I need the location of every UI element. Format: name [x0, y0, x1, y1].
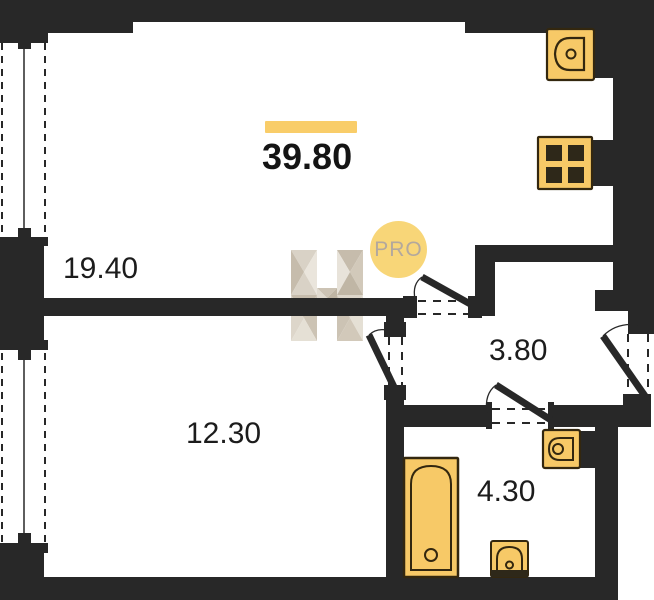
door-leaf — [496, 385, 551, 420]
toilet-icon — [491, 541, 528, 577]
room-area-label-living-kitchen: 19.40 — [63, 254, 138, 284]
wall-segment — [595, 290, 654, 311]
window-sill — [0, 340, 48, 350]
kitchen-sink-icon — [547, 29, 594, 80]
h-logo-icon — [291, 250, 363, 341]
door-leaf — [422, 277, 472, 305]
wall-segment — [613, 0, 654, 290]
room-area-label-bedroom: 12.30 — [186, 419, 261, 449]
bathtub-icon — [404, 458, 458, 577]
wall-segment — [0, 0, 133, 33]
door-jamb — [628, 311, 654, 334]
wall-segment — [0, 577, 618, 600]
accent-bar — [265, 121, 357, 133]
wall-segment — [404, 405, 492, 427]
door-jamb — [384, 385, 406, 400]
total-area-label: 39.80 — [262, 139, 352, 175]
wall-segment — [0, 553, 44, 579]
door-leaf — [369, 335, 394, 387]
window-sill — [0, 543, 48, 553]
window-frame-cap — [18, 533, 31, 543]
wall-segment — [548, 405, 651, 427]
room-area-label-bathroom: 4.30 — [477, 477, 535, 507]
wall-segment — [133, 0, 465, 22]
wall-segment — [0, 245, 44, 340]
room-area-label-hallway: 3.80 — [489, 336, 547, 366]
window-frame-cap — [18, 228, 31, 238]
floor-plan: 39.80 19.40 12.30 3.80 4.30 PRO — [0, 0, 654, 600]
window-frame-cap — [18, 350, 31, 360]
wall-segment — [475, 245, 618, 262]
door-leaf — [603, 336, 645, 396]
walls — [0, 0, 654, 600]
stove-backing — [590, 140, 615, 186]
wall-segment — [595, 427, 618, 577]
pro-badge: PRO — [370, 221, 427, 278]
window-sill — [0, 237, 48, 246]
bathroom-sink-icon — [543, 430, 580, 468]
wall-segment — [44, 298, 405, 316]
floor-plan-drawing — [0, 0, 654, 600]
window-frame-cap — [18, 39, 31, 49]
stove-icon — [538, 137, 592, 189]
wall-segment — [386, 398, 404, 577]
door-jamb — [403, 296, 417, 318]
